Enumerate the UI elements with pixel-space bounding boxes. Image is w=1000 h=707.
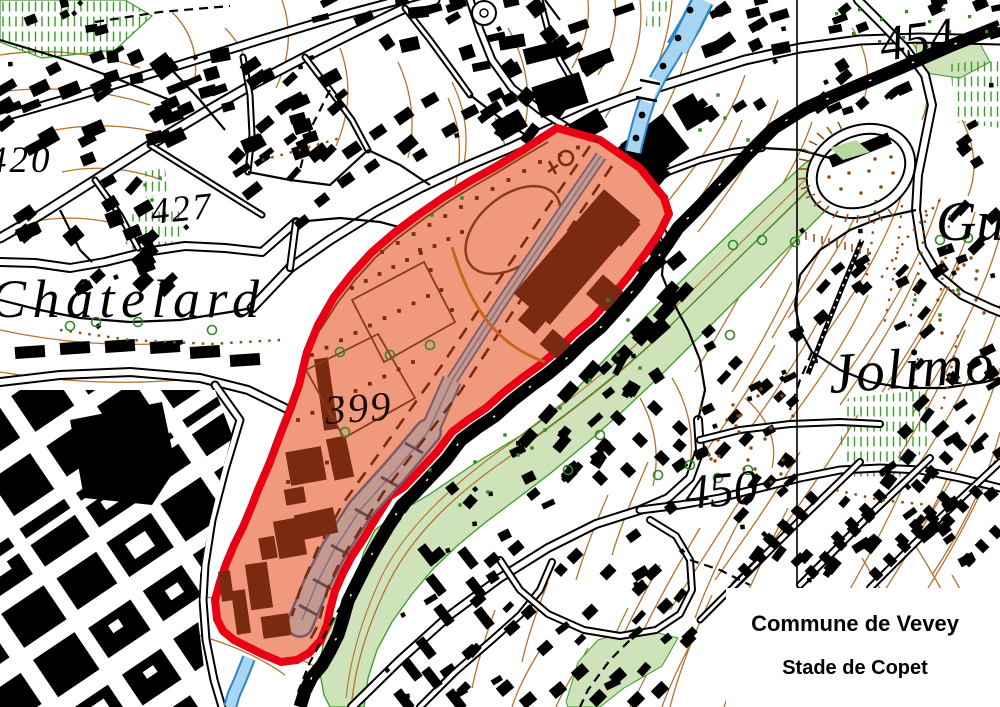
svg-text:450: 450 [682, 459, 760, 520]
svg-text:Jolimo: Jolimo [827, 331, 998, 406]
svg-text:399: 399 [322, 382, 394, 433]
svg-text:454: 454 [876, 6, 958, 72]
svg-text:Gu: Gu [936, 191, 1000, 253]
svg-text:420: 420 [0, 140, 53, 181]
svg-text:Stade de Copet: Stade de Copet [782, 657, 928, 679]
svg-text:Châtelard: Châtelard [0, 269, 266, 329]
svg-text:Commune de Vevey: Commune de Vevey [751, 611, 960, 636]
svg-text:427: 427 [149, 186, 216, 233]
